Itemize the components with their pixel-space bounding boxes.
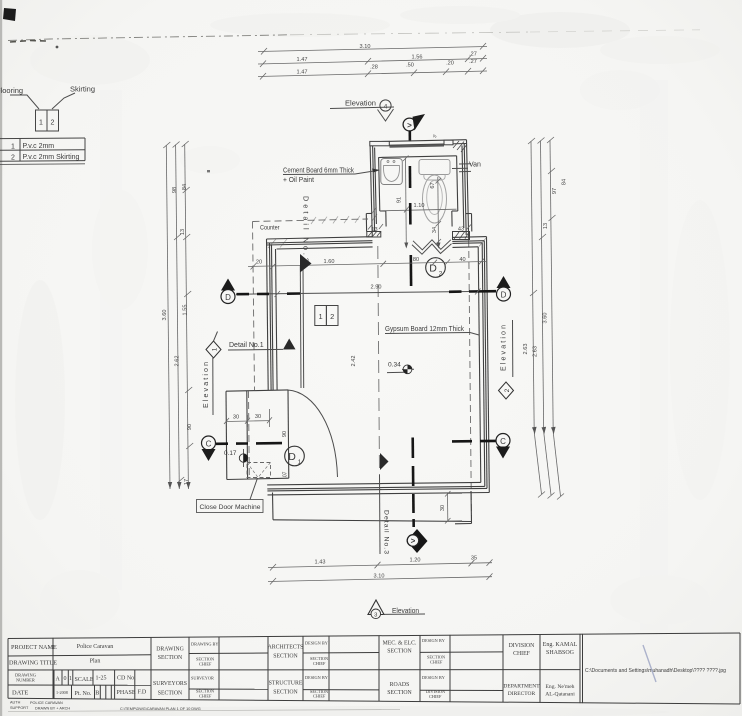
svg-text:3.10: 3.10 xyxy=(374,574,385,580)
svg-text:CD No.: CD No. xyxy=(117,675,136,681)
svg-text:SECTION: SECTION xyxy=(273,690,298,696)
svg-text:1: 1 xyxy=(211,347,218,351)
svg-text:1.47: 1.47 xyxy=(297,57,308,63)
svg-text:DESIGN BY: DESIGN BY xyxy=(305,641,328,646)
svg-text:Elevation: Elevation xyxy=(345,99,376,108)
svg-text:0.17: 0.17 xyxy=(224,450,237,457)
svg-text:3.10: 3.10 xyxy=(360,44,371,50)
svg-text:B: B xyxy=(95,691,99,697)
svg-text:3: 3 xyxy=(374,612,377,618)
svg-text:SECTION: SECTION xyxy=(387,690,412,696)
svg-text:DIRECTOR: DIRECTOR xyxy=(508,691,536,697)
svg-text:0: 0 xyxy=(64,676,67,682)
svg-text:.27: .27 xyxy=(469,59,477,65)
svg-text:CHIEF: CHIEF xyxy=(199,693,212,698)
svg-text:2.90: 2.90 xyxy=(371,285,382,291)
svg-text:1.56: 1.56 xyxy=(412,55,423,61)
svg-text:DESIGN BY: DESIGN BY xyxy=(305,675,328,680)
svg-text:13: 13 xyxy=(180,229,186,235)
svg-text:1.55: 1.55 xyxy=(183,305,189,316)
svg-text:3.60: 3.60 xyxy=(543,313,549,324)
svg-text:.28: .28 xyxy=(370,65,378,71)
svg-text:SECTION: SECTION xyxy=(158,691,183,697)
svg-text:Skirting: Skirting xyxy=(70,85,95,94)
svg-text:1.47: 1.47 xyxy=(297,70,308,76)
svg-text:90: 90 xyxy=(282,431,288,437)
svg-text:2: 2 xyxy=(504,388,511,392)
svg-text:2.63: 2.63 xyxy=(533,346,539,357)
svg-text:P.v.c 2mm Skirting: P.v.c 2mm Skirting xyxy=(23,154,80,161)
svg-text:.20: .20 xyxy=(446,61,454,67)
svg-text:.07: .07 xyxy=(283,471,289,478)
svg-text:4: 4 xyxy=(384,103,388,110)
svg-text:40: 40 xyxy=(459,257,465,263)
svg-text:80: 80 xyxy=(413,257,419,263)
svg-text:A: A xyxy=(56,677,61,683)
svg-text:AL-Qatanani: AL-Qatanani xyxy=(545,692,575,698)
svg-text:1.43: 1.43 xyxy=(315,560,326,566)
svg-text:CHIEF: CHIEF xyxy=(199,662,212,667)
svg-text:DRAWING BY: DRAWING BY xyxy=(191,642,218,647)
svg-text:AUTH: AUTH xyxy=(10,701,21,705)
svg-text:.50: .50 xyxy=(406,63,414,69)
svg-text:DRAWN BY + ARCH: DRAWN BY + ARCH xyxy=(35,706,70,710)
svg-text:1: 1 xyxy=(11,144,15,151)
svg-text:C:\Documents and Settings\muha: C:\Documents and Settings\muhanadh\Deskt… xyxy=(585,668,726,674)
svg-text:.27: .27 xyxy=(469,52,477,58)
svg-text:Eng. Ne'meh: Eng. Ne'meh xyxy=(546,684,575,690)
svg-text:Counter: Counter xyxy=(260,225,280,232)
svg-text:Police Caravan: Police Caravan xyxy=(77,644,114,650)
svg-text:1: 1 xyxy=(69,676,72,682)
svg-text:ROADS: ROADS xyxy=(390,682,410,688)
svg-text:98: 98 xyxy=(172,187,178,193)
svg-text:Detail No.2: Detail No.2 xyxy=(302,196,311,262)
svg-text:SCALE: SCALE xyxy=(75,677,94,683)
svg-text:DESIGN BY: DESIGN BY xyxy=(422,675,445,680)
svg-text:1.60: 1.60 xyxy=(324,259,335,265)
svg-text:Close Door Machine: Close Door Machine xyxy=(200,504,261,511)
svg-text:SURVEYOR: SURVEYOR xyxy=(191,676,214,681)
svg-text:20: 20 xyxy=(256,260,262,266)
svg-text:+ Oil Paint: + Oil Paint xyxy=(283,175,314,184)
svg-text:1-2008: 1-2008 xyxy=(56,690,68,695)
svg-text:67: 67 xyxy=(430,182,436,188)
svg-text:1: 1 xyxy=(39,120,43,127)
svg-text:2: 2 xyxy=(330,312,334,321)
svg-text:0.34: 0.34 xyxy=(388,362,401,369)
svg-text:C: C xyxy=(500,437,506,446)
svg-text:SECTION: SECTION xyxy=(158,655,183,661)
svg-text:2: 2 xyxy=(51,120,55,127)
svg-text:SECTION: SECTION xyxy=(387,649,412,655)
svg-text:34: 34 xyxy=(432,227,438,233)
svg-text:D: D xyxy=(225,293,231,302)
svg-text:1: 1 xyxy=(298,459,302,466)
svg-text:D: D xyxy=(288,451,296,463)
svg-text:1-25: 1-25 xyxy=(96,676,107,682)
svg-text:3.60: 3.60 xyxy=(162,310,168,321)
svg-text:Eng. KAMAL: Eng. KAMAL xyxy=(543,642,578,648)
svg-text:MEC. & ELC.: MEC. & ELC. xyxy=(383,641,417,647)
svg-text:97: 97 xyxy=(552,188,558,194)
svg-text:84: 84 xyxy=(182,184,188,190)
svg-text:30: 30 xyxy=(440,505,446,511)
svg-text:2: 2 xyxy=(439,271,443,278)
svg-text:1.20: 1.20 xyxy=(410,558,421,564)
svg-text:84: 84 xyxy=(562,179,568,185)
svg-text:SURVEYORS: SURVEYORS xyxy=(153,681,187,687)
svg-text:>: > xyxy=(411,537,416,546)
svg-text:2.42: 2.42 xyxy=(351,356,357,367)
svg-text:CHIEF: CHIEF xyxy=(313,694,326,699)
svg-text:Flooring: Flooring xyxy=(0,86,23,95)
svg-text:Pt. No.: Pt. No. xyxy=(75,691,92,697)
svg-text:Cement Board 6mm Thick: Cement Board 6mm Thick xyxy=(283,166,354,175)
svg-text:F.D: F.D xyxy=(138,690,147,696)
svg-text:Detail No.3: Detail No.3 xyxy=(383,510,390,554)
svg-text:SUPPORT: SUPPORT xyxy=(10,706,29,710)
svg-text:2: 2 xyxy=(11,155,15,162)
svg-text:2.62: 2.62 xyxy=(175,356,181,367)
svg-text:PHASE: PHASE xyxy=(117,690,136,696)
svg-text:CHIEF: CHIEF xyxy=(513,651,531,657)
svg-text:43: 43 xyxy=(458,227,464,233)
svg-text:DRAWING TITLE: DRAWING TITLE xyxy=(9,660,57,667)
svg-text:P.v.c 2mm: P.v.c 2mm xyxy=(23,143,55,150)
svg-text:POLICE CARAVAN: POLICE CARAVAN xyxy=(30,701,63,705)
svg-text:90: 90 xyxy=(187,424,193,430)
svg-text:CHIEF: CHIEF xyxy=(429,694,442,699)
svg-text:CHIEF: CHIEF xyxy=(313,661,326,666)
svg-text:Van: Van xyxy=(469,162,481,169)
svg-text:DIVISION: DIVISION xyxy=(509,643,536,649)
svg-text:DATE: DATE xyxy=(12,690,28,697)
svg-text:DESIGN BY: DESIGN BY xyxy=(422,638,445,643)
svg-text:D: D xyxy=(501,290,507,299)
svg-text:35: 35 xyxy=(471,556,477,562)
svg-text:1: 1 xyxy=(319,312,323,321)
svg-text:Gypsum Board 12mm Thick: Gypsum Board 12mm Thick xyxy=(385,324,464,333)
svg-text:NUMBER: NUMBER xyxy=(16,678,35,683)
svg-text:DRAWING: DRAWING xyxy=(156,647,184,653)
svg-text:>: > xyxy=(407,121,412,130)
svg-text:SHABSOG: SHABSOG xyxy=(546,650,575,656)
svg-text:DEPARTMENT: DEPARTMENT xyxy=(503,684,540,690)
svg-text:ARCHITECTS: ARCHITECTS xyxy=(268,645,304,651)
svg-text:CHIEF: CHIEF xyxy=(430,659,443,664)
svg-text:Plan: Plan xyxy=(90,659,101,665)
svg-text:Elevation: Elevation xyxy=(501,325,508,371)
svg-text:13: 13 xyxy=(543,223,549,229)
svg-text:13: 13 xyxy=(371,227,377,233)
svg-text:Elevation: Elevation xyxy=(203,362,210,408)
svg-text:30: 30 xyxy=(233,415,239,421)
svg-text:C: C xyxy=(206,439,212,448)
svg-text:Detail No.1: Detail No.1 xyxy=(229,342,264,349)
svg-text:PROJECT NAME: PROJECT NAME xyxy=(11,644,57,651)
svg-text:91: 91 xyxy=(397,197,403,203)
svg-text:17: 17 xyxy=(184,479,190,485)
svg-text:2.63: 2.63 xyxy=(523,344,529,355)
svg-text:1.10: 1.10 xyxy=(414,203,425,209)
svg-text:STRUCTURE: STRUCTURE xyxy=(269,681,303,687)
svg-text:SECTION: SECTION xyxy=(273,654,298,660)
svg-text:30: 30 xyxy=(255,414,261,420)
